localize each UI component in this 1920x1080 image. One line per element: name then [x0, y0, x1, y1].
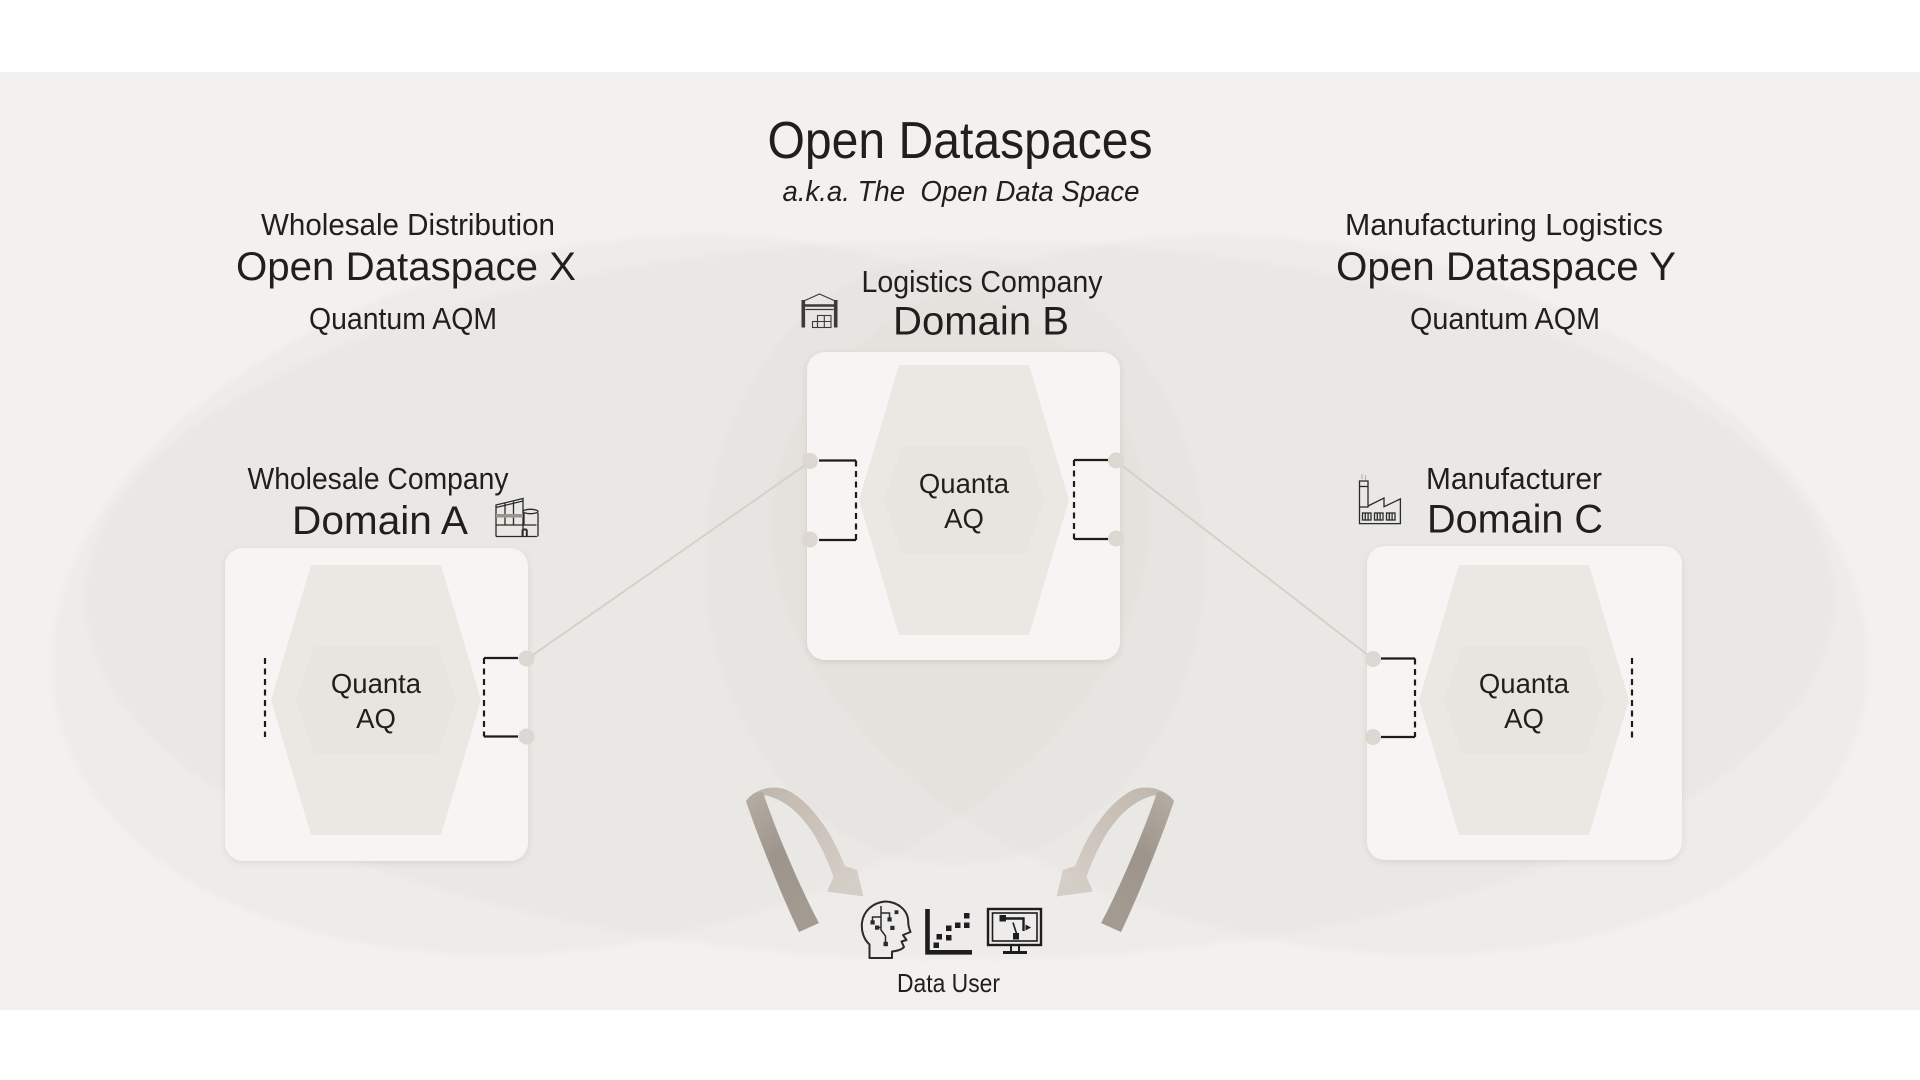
svg-text:Quanta: Quanta [1479, 668, 1570, 699]
svg-text:Domain B: Domain B [893, 300, 1069, 344]
svg-text:Domain C: Domain C [1427, 498, 1603, 542]
svg-text:Manufacturer: Manufacturer [1426, 461, 1602, 496]
svg-text:Logistics Company: Logistics Company [862, 264, 1103, 299]
svg-text:Wholesale Distribution: Wholesale Distribution [261, 207, 555, 242]
svg-text:Quantum AQM: Quantum AQM [1410, 301, 1600, 336]
svg-text:Quanta: Quanta [919, 468, 1010, 499]
svg-text:Open Dataspaces: Open Dataspaces [768, 112, 1153, 170]
svg-text:AQ: AQ [1504, 703, 1544, 734]
svg-text:Open Dataspace Y: Open Dataspace Y [1336, 245, 1676, 289]
svg-text:Manufacturing Logistics: Manufacturing Logistics [1345, 207, 1663, 242]
svg-text:Data User: Data User [897, 968, 1000, 998]
svg-text:AQ: AQ [356, 703, 396, 734]
svg-text:Quantum AQM: Quantum AQM [309, 301, 497, 336]
svg-text:Domain A: Domain A [292, 499, 468, 543]
svg-text:AQ: AQ [944, 503, 984, 534]
svg-text:Wholesale Company: Wholesale Company [248, 461, 509, 496]
svg-text:a.k.a. The Open Data Space: a.k.a. The Open Data Space [783, 176, 1140, 208]
svg-text:Quanta: Quanta [331, 668, 422, 699]
svg-text:Open Dataspace X: Open Dataspace X [236, 245, 576, 289]
